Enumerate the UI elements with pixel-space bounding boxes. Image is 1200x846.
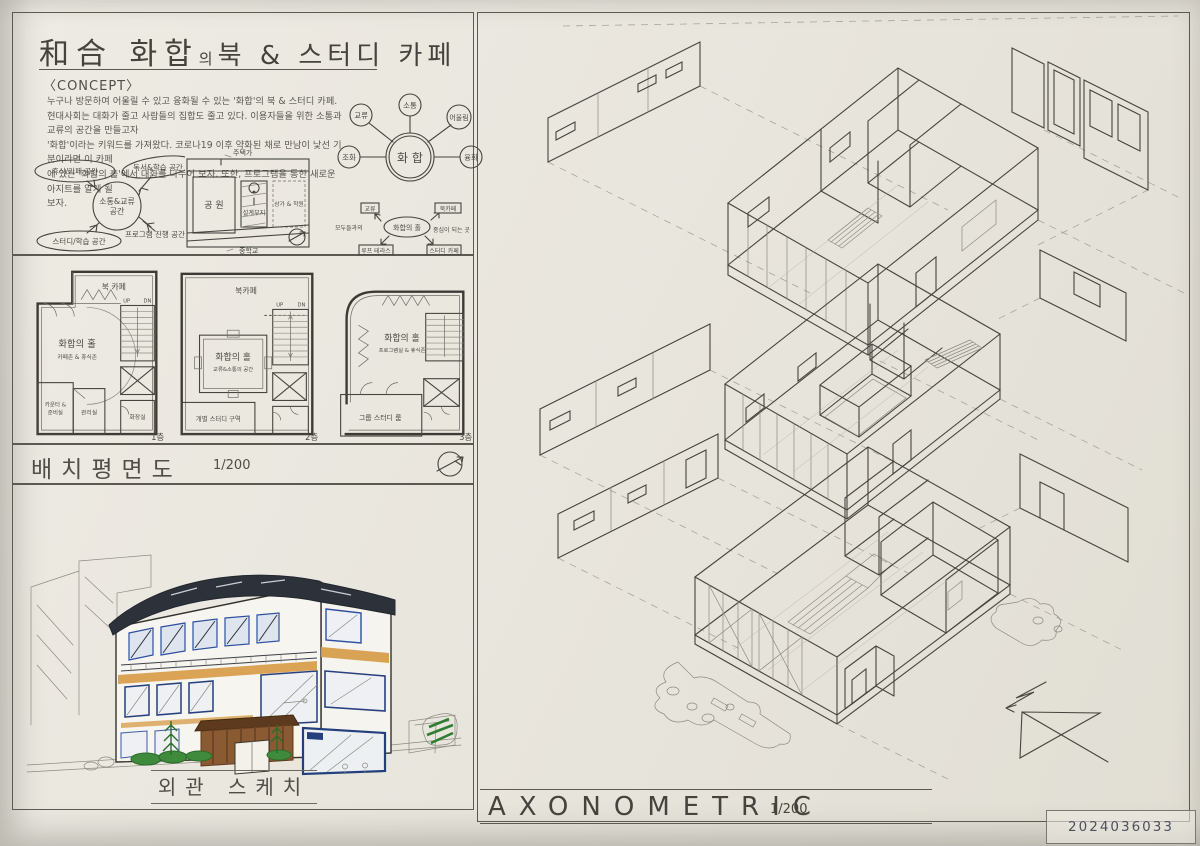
sketch-panel: 외관 스케치 bbox=[12, 484, 474, 810]
site-school-label: 중학교 bbox=[239, 246, 259, 255]
space-bottom-left-label: 스터디/학습 공간 bbox=[52, 236, 105, 246]
site-plan-diagram: 주택가 공 원 설계부지 상가 & 학원 중학교 bbox=[181, 145, 315, 255]
axon-level-1 bbox=[655, 447, 1062, 748]
floor1-up-label: UP bbox=[123, 299, 130, 305]
site-park-label: 공 원 bbox=[204, 200, 223, 211]
wall-elevation-strip-bottom bbox=[558, 434, 718, 558]
axon-level-3 bbox=[728, 68, 1038, 355]
floor3-hall-sub-label: 프로그램실 & 휴식존 bbox=[379, 346, 426, 354]
plan-section-label: 배치평면도 bbox=[31, 450, 182, 484]
keyword-top-label: 소통 bbox=[403, 101, 417, 110]
keyword-right-label: 융화 bbox=[464, 153, 478, 162]
page-title: 和合 화합의 북 & 스터디 카페 bbox=[39, 29, 459, 73]
floor2-up-label: UP bbox=[276, 302, 283, 308]
wall-elevation-strip-middle bbox=[540, 324, 710, 455]
floor3-plan: 화합의 홀 프로그램실 & 휴식존 그룹 스터디 룸 3층 bbox=[324, 258, 476, 442]
space-top-right-label: 독서&학습 공간 bbox=[133, 162, 183, 172]
floor3-label: 3층 bbox=[459, 432, 472, 442]
floor1-dn-label: DN bbox=[144, 299, 152, 305]
space-bubble-diagram: 휴식/카페 공간 독서&학습 공간 소통&교류 공간 스터디/학습 공간 프로그… bbox=[27, 151, 185, 253]
wall-elevation-strip-top bbox=[548, 42, 700, 162]
concept-line: 현대사회는 대화가 줄고 사람들의 집합도 줄고 있다. 이용자들을 위한 소통… bbox=[47, 110, 347, 139]
plan-section-label-row: 배치평면도 1/200 bbox=[12, 444, 474, 484]
floor1-hall-sub-label: 카페존 & 휴식존 bbox=[57, 353, 97, 361]
axon-scale: 1/200 bbox=[770, 802, 807, 817]
space-center-label-1: 소통&교류 bbox=[99, 197, 135, 206]
title-underline bbox=[39, 69, 377, 70]
floor2-bookcafe-label: 북카페 bbox=[235, 286, 257, 296]
floor3-hall-label: 화합의 홀 bbox=[384, 332, 420, 344]
wall-elevation-panel-bottom-right bbox=[1020, 454, 1128, 562]
title-rest: 북 & 스터디 카페 bbox=[218, 41, 457, 71]
floor1-label: 1층 bbox=[151, 432, 164, 442]
floor1-counter-label-1: 카운터 & bbox=[45, 400, 67, 408]
site-top-label: 주택가 bbox=[233, 148, 253, 157]
floor2-dn-label: DN bbox=[298, 302, 306, 308]
sketch-section-label-text: 외관 스케치 bbox=[158, 775, 310, 799]
wall-elevation-panel-middle-right bbox=[1040, 250, 1126, 341]
hall-center-label: 화합의 홀 bbox=[393, 223, 422, 232]
floor-plans-panel: 북 카페 화합의 홀 카페존 & 휴식존 UP DN 카운터 & 준비실 관리실… bbox=[12, 255, 474, 444]
floor3-group-label: 그룹 스터디 룸 bbox=[359, 413, 402, 422]
keyword-left-label: 조화 bbox=[342, 153, 356, 162]
floor2-study-label: 개별 스터디 구역 bbox=[196, 414, 241, 423]
north-arrow-icon bbox=[431, 446, 469, 482]
hall-box-br-label: 스터디 카페 bbox=[429, 247, 459, 255]
concept-line: 누구나 방문하여 어울릴 수 있고 융화될 수 있는 '화합'의 북 & 스터디… bbox=[47, 95, 347, 110]
hall-right-label: 중심이 되는 곳 bbox=[433, 226, 470, 234]
floor1-plan: 북 카페 화합의 홀 카페존 & 휴식존 UP DN 카운터 & 준비실 관리실… bbox=[17, 258, 169, 442]
exterior-sketch bbox=[21, 525, 467, 777]
hall-box-bl-label: 루프 테라스 bbox=[361, 247, 391, 255]
axonometric-drawing bbox=[478, 10, 1192, 822]
floor1-bookcafe-label: 북 카페 bbox=[102, 282, 126, 292]
hall-relation-diagram: 화합의 홀 교류 북카페 루프 테라스 스터디 카페 모두들과의 중심이 되는 … bbox=[335, 201, 485, 257]
concept-heading: 〈CONCEPT〉 bbox=[43, 75, 140, 94]
floor2-hall-label: 화합의 홀 bbox=[215, 351, 251, 363]
floor1-hall-label: 화합의 홀 bbox=[58, 338, 96, 350]
floor1-counter-label-2: 준비실 bbox=[48, 408, 63, 416]
floor1-toilet-label: 화장실 bbox=[129, 413, 145, 421]
title-particle: 의 bbox=[199, 50, 213, 68]
title-main: 和合 화합 bbox=[39, 37, 199, 72]
student-id-box: 2024036033 윤 해 린 bbox=[1046, 810, 1196, 844]
student-id: 2024036033 bbox=[1047, 811, 1195, 843]
keyword-bubble-diagram: 화 합 소통 교류 어울림 조화 융화 bbox=[335, 91, 485, 203]
hall-box-tr-label: 북카페 bbox=[440, 205, 457, 213]
axon-section-label-row: AXONOMETRIC 1/200 bbox=[480, 789, 932, 824]
space-center-label-2: 공간 bbox=[110, 206, 125, 216]
presentation-board-photo: 和合 화합의 북 & 스터디 카페 〈CONCEPT〉 누구나 방문하여 어울릴… bbox=[0, 0, 1200, 846]
hall-left-label: 모두들과의 bbox=[335, 224, 363, 232]
keyword-center-label: 화 합 bbox=[397, 151, 423, 165]
floor2-label: 2층 bbox=[305, 432, 318, 442]
sketch-section-label: 외관 스케치 bbox=[151, 770, 317, 804]
space-top-left-label: 휴식/카페 공간 bbox=[52, 166, 98, 176]
concept-panel: 和合 화합의 북 & 스터디 카페 〈CONCEPT〉 누구나 방문하여 어울릴… bbox=[12, 12, 474, 255]
keyword-top-right-label: 어울림 bbox=[449, 113, 468, 122]
north-arrow-icon bbox=[1006, 682, 1108, 762]
plan-scale: 1/200 bbox=[213, 458, 250, 473]
axon-level-2 bbox=[725, 264, 1000, 519]
floor1-office-label: 관리실 bbox=[81, 408, 97, 416]
site-site-label: 설계부지 bbox=[243, 209, 266, 217]
keyword-top-left-label: 교류 bbox=[354, 111, 368, 120]
wall-elevation-panels-top-right bbox=[1012, 48, 1148, 190]
floor2-hall-sub-label: 교류&소통의 공간 bbox=[213, 366, 253, 373]
floor2-plan: 북카페 화합의 홀 교류&소통의 공간 UP DN 개별 스터디 구역 2층 bbox=[171, 258, 323, 442]
hall-box-tl-label: 교류 bbox=[364, 206, 376, 213]
site-shops-label: 상가 & 학원 bbox=[274, 200, 304, 208]
